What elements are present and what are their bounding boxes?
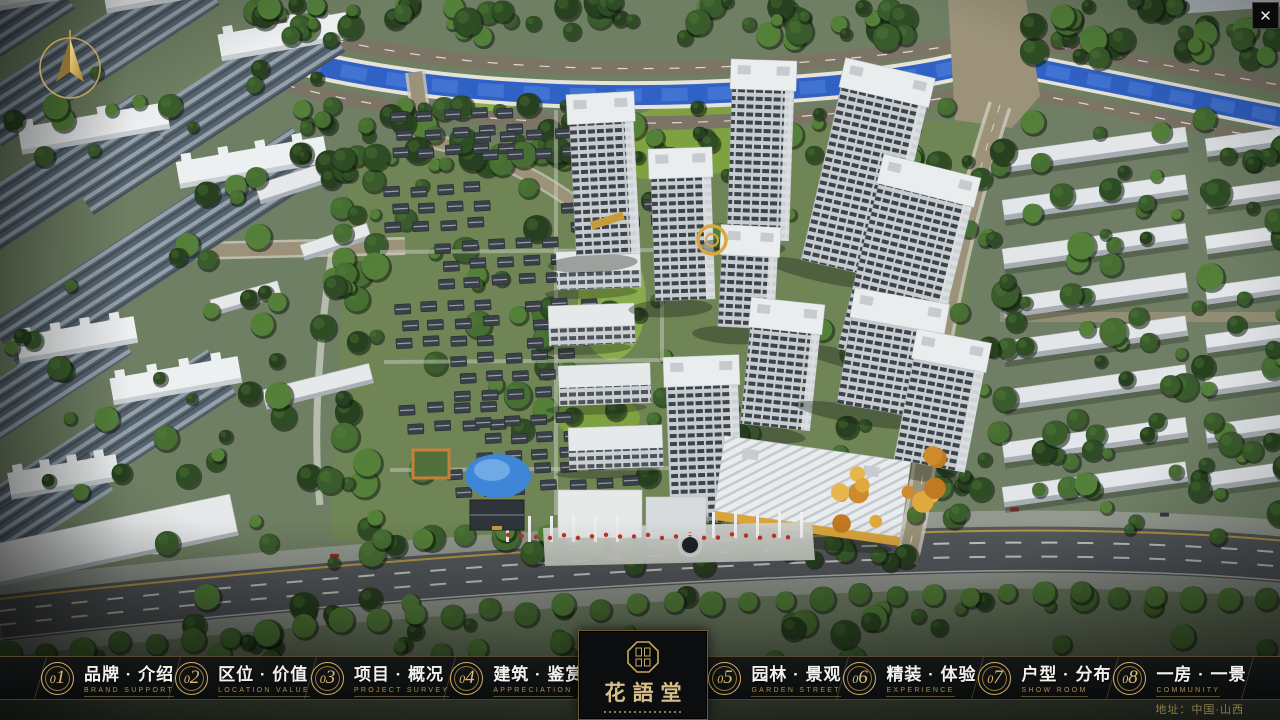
- nav-item-label-en: LOCATION VALUE: [218, 687, 310, 697]
- nav-item-06[interactable]: 06 精装 · 体验 EXPERIENCE: [843, 657, 977, 699]
- nav-item-labels: 园林 · 景观 GARDEN STREET: [751, 660, 841, 697]
- nav-item-label-zh: 品牌 · 介绍: [84, 660, 174, 685]
- nav-item-labels: 一房 · 一景 COMMUNITY: [1156, 660, 1246, 697]
- nav-item-04[interactable]: 04 建筑 · 鉴赏 APPRECIATION: [450, 657, 583, 699]
- masterplan-aerial-render[interactable]: [0, 0, 1280, 720]
- nav-item-labels: 区位 · 价值 LOCATION VALUE: [218, 660, 310, 697]
- navbar-right-group: 05 园林 · 景观 GARDEN STREET 06 精装 · 体验 EXPE…: [708, 657, 1280, 699]
- nav-item-number-badge: 08: [1113, 662, 1146, 695]
- nav-item-number-badge: 02: [175, 662, 208, 695]
- nav-item-labels: 建筑 · 鉴赏 APPRECIATION: [493, 660, 583, 697]
- nav-item-labels: 精装 · 体验 EXPERIENCE: [886, 660, 976, 697]
- nav-item-02[interactable]: 02 区位 · 价值 LOCATION VALUE: [175, 657, 310, 699]
- nav-item-label-zh: 区位 · 价值: [218, 660, 308, 685]
- nav-item-01[interactable]: 01 品牌 · 介绍 BRAND SUPPORT: [41, 657, 174, 699]
- project-logo-panel[interactable]: 花語堂: [578, 630, 708, 720]
- nav-item-label-en: APPRECIATION: [493, 687, 572, 697]
- project-address: 地址：中国·山西: [1155, 701, 1244, 717]
- presentation-stage: ✕ 01 品牌 · 介绍 BRAND SUPPORT 02 区位 · 价值 LO…: [0, 0, 1280, 720]
- nav-item-label-en: BRAND SUPPORT: [84, 687, 174, 697]
- navbar-spacer: [1248, 657, 1280, 699]
- nav-item-label-zh: 项目 · 概况: [354, 660, 444, 685]
- compass-north-icon[interactable]: [28, 24, 112, 108]
- nav-item-number-badge: 04: [450, 662, 483, 695]
- close-button[interactable]: ✕: [1252, 2, 1279, 29]
- navbar-left-group: 01 品牌 · 介绍 BRAND SUPPORT 02 区位 · 价值 LOCA…: [0, 657, 578, 699]
- nav-item-07[interactable]: 07 户型 · 分布 SHOW ROOM: [978, 657, 1112, 699]
- nav-item-number-badge: 07: [978, 662, 1011, 695]
- seal-emblem-icon: [626, 640, 660, 674]
- nav-item-labels: 户型 · 分布 SHOW ROOM: [1021, 660, 1111, 697]
- nav-item-label-en: GARDEN STREET: [751, 687, 840, 697]
- nav-item-label-zh: 户型 · 分布: [1021, 660, 1111, 685]
- nav-item-05[interactable]: 05 园林 · 景观 GARDEN STREET: [708, 657, 842, 699]
- project-name: 花語堂: [598, 677, 689, 707]
- nav-item-number-badge: 06: [843, 662, 876, 695]
- nav-item-label-en: EXPERIENCE: [886, 687, 954, 697]
- nav-item-label-zh: 园林 · 景观: [751, 660, 841, 685]
- nav-item-label-zh: 精装 · 体验: [886, 660, 976, 685]
- navbar-spacer: [0, 657, 40, 699]
- nav-item-number-badge: 01: [41, 662, 74, 695]
- nav-item-labels: 品牌 · 介绍 BRAND SUPPORT: [84, 660, 174, 697]
- project-name-caption: [604, 711, 682, 713]
- nav-item-label-en: PROJECT SURVEY: [354, 687, 449, 697]
- close-icon: ✕: [1259, 7, 1272, 25]
- nav-item-labels: 项目 · 概况 PROJECT SURVEY: [354, 660, 449, 697]
- nav-item-label-zh: 一房 · 一景: [1156, 660, 1246, 685]
- nav-item-label-en: COMMUNITY: [1156, 687, 1220, 697]
- nav-item-03[interactable]: 03 项目 · 概况 PROJECT SURVEY: [311, 657, 449, 699]
- nav-item-08[interactable]: 08 一房 · 一景 COMMUNITY: [1113, 657, 1247, 699]
- nav-item-label-zh: 建筑 · 鉴赏: [493, 660, 583, 685]
- nav-item-number-badge: 03: [311, 662, 344, 695]
- nav-item-number-badge: 05: [708, 662, 741, 695]
- nav-item-label-en: SHOW ROOM: [1021, 687, 1087, 697]
